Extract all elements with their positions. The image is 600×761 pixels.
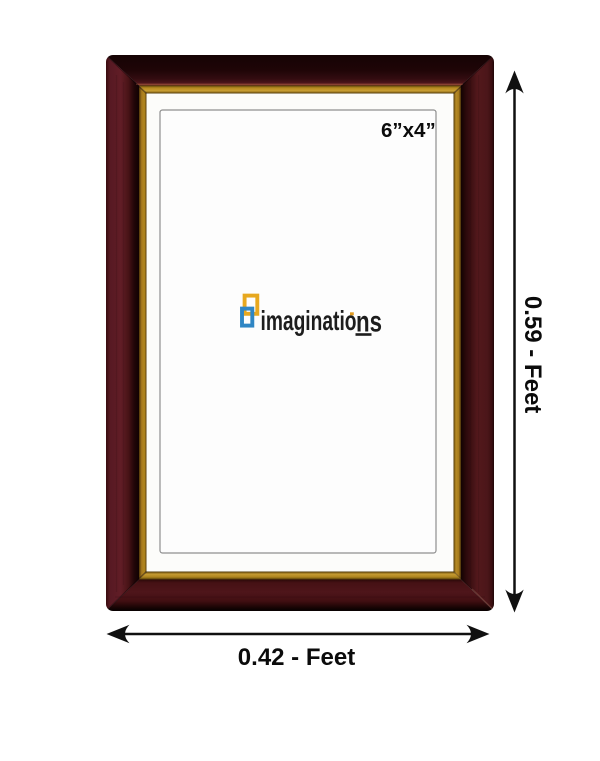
svg-text:0.59 - Feet: 0.59 - Feet	[519, 296, 546, 413]
svg-text:6”x4”: 6”x4”	[381, 119, 436, 142]
svg-text:0.42 - Feet: 0.42 - Feet	[238, 644, 355, 671]
svg-text:imaginatio: imaginatio	[261, 305, 357, 336]
